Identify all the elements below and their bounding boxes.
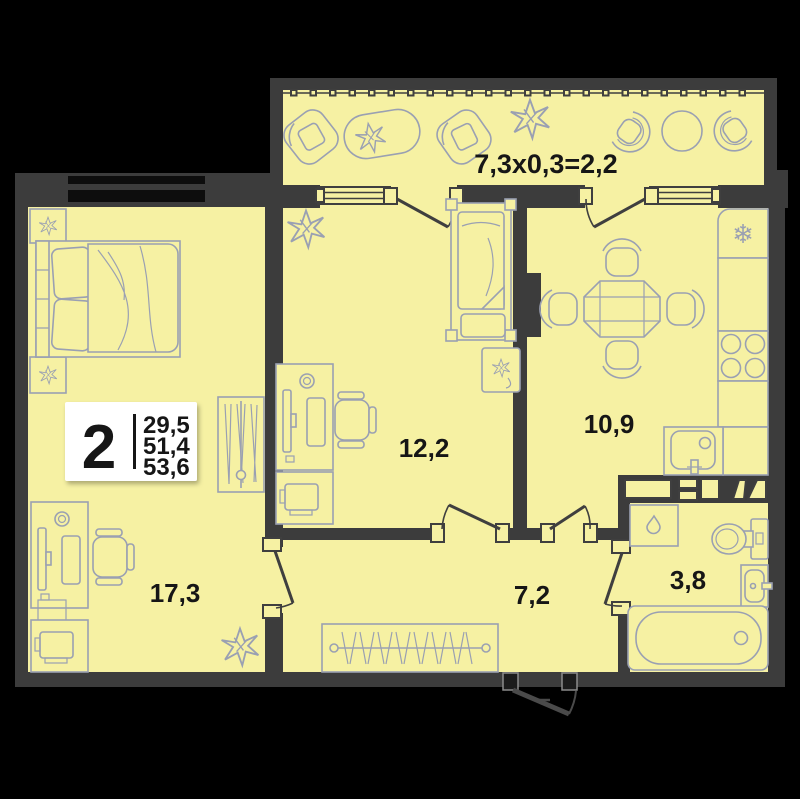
furniture-hallway <box>322 624 498 672</box>
glazing-dot <box>584 90 590 96</box>
wall-left <box>15 173 28 687</box>
wall-right <box>768 208 785 687</box>
glazing-dot <box>545 90 551 96</box>
nightstand-1 <box>30 209 66 243</box>
glazing-dot <box>740 90 746 96</box>
floors <box>15 78 780 687</box>
bathroom-sink <box>741 565 772 607</box>
desk-child-room <box>276 364 333 470</box>
glazing-dot <box>330 90 336 96</box>
single-bed <box>446 199 516 341</box>
glazing-dot <box>506 90 512 96</box>
nightstand-2 <box>30 357 66 393</box>
kitchen-counter-3 <box>723 427 768 475</box>
glazing-dot <box>311 90 317 96</box>
kitchen-counter-1 <box>718 258 768 331</box>
dining-table <box>584 281 660 337</box>
glazing-dot <box>467 90 473 96</box>
glazing-dot <box>291 90 297 96</box>
unit-badge: 2 29,5 51,4 53,6 <box>65 402 197 482</box>
wardrobe <box>218 397 264 492</box>
duct-inset-3 <box>679 491 697 500</box>
label-bedroom: 17,3 <box>150 578 201 608</box>
coat-rack <box>322 624 498 672</box>
glazing-dot <box>642 90 648 96</box>
glazing-dot <box>681 90 687 96</box>
printer-stand-child-room <box>276 472 333 524</box>
label-bathroom: 3,8 <box>670 565 706 595</box>
window-child-room <box>316 187 392 204</box>
wall-right-step <box>764 170 788 208</box>
wall-kitchen-column <box>527 273 541 337</box>
wall-bottom <box>15 672 785 687</box>
double-bed <box>36 241 180 357</box>
balcony-round-table <box>662 111 702 151</box>
wall-balcony-top <box>270 78 777 90</box>
glazing-dot <box>408 90 414 96</box>
wall-balcony-left <box>270 78 283 185</box>
stove <box>718 331 768 381</box>
glazing-dot <box>662 90 668 96</box>
floor-plan: ❄ <box>0 0 800 799</box>
glazing-dot <box>428 90 434 96</box>
glazing-dot <box>350 90 356 96</box>
fridge: ❄ <box>718 209 768 258</box>
label-hallway: 7,2 <box>514 580 550 610</box>
wall-hall-1 <box>283 528 438 540</box>
glazing-dot <box>623 90 629 96</box>
wall-band-right <box>718 185 764 208</box>
glazing-dot <box>525 90 531 96</box>
glazing-dot <box>564 90 570 96</box>
label-kitchen: 10,9 <box>584 409 635 439</box>
wall-bedroom-divider-lower <box>265 613 283 672</box>
glazing-dot <box>369 90 375 96</box>
snowflake-icon: ❄ <box>732 219 754 249</box>
label-balcony: 7,3x0,3=2,2 <box>474 149 617 179</box>
glazing-dot <box>720 90 726 96</box>
nightstand-toy <box>482 348 520 392</box>
bathtub <box>628 606 768 670</box>
washing-machine <box>630 505 678 546</box>
desk-bedroom <box>31 502 88 608</box>
glazing-dot <box>701 90 707 96</box>
kitchen-counter-2 <box>718 381 768 427</box>
kitchen-sink <box>664 427 723 475</box>
glazing-dot <box>447 90 453 96</box>
floor-plan-stage: ❄ <box>0 0 800 799</box>
wall-band-left <box>283 185 320 208</box>
label-child-room: 12,2 <box>399 433 450 463</box>
duct-inset-2 <box>679 479 697 488</box>
glazing-dot <box>389 90 395 96</box>
duct-inset-1 <box>625 480 671 498</box>
bedroom-window-glass-1 <box>68 176 205 184</box>
badge-area-3: 53,6 <box>143 454 190 481</box>
glazing-dot <box>486 90 492 96</box>
glazing-dot <box>603 90 609 96</box>
duct-inset-4 <box>701 479 719 499</box>
badge-room-count: 2 <box>82 413 116 482</box>
printer-stand-bedroom <box>31 620 88 672</box>
bedroom-window-glass-2 <box>68 190 205 202</box>
badge-divider <box>133 414 136 469</box>
